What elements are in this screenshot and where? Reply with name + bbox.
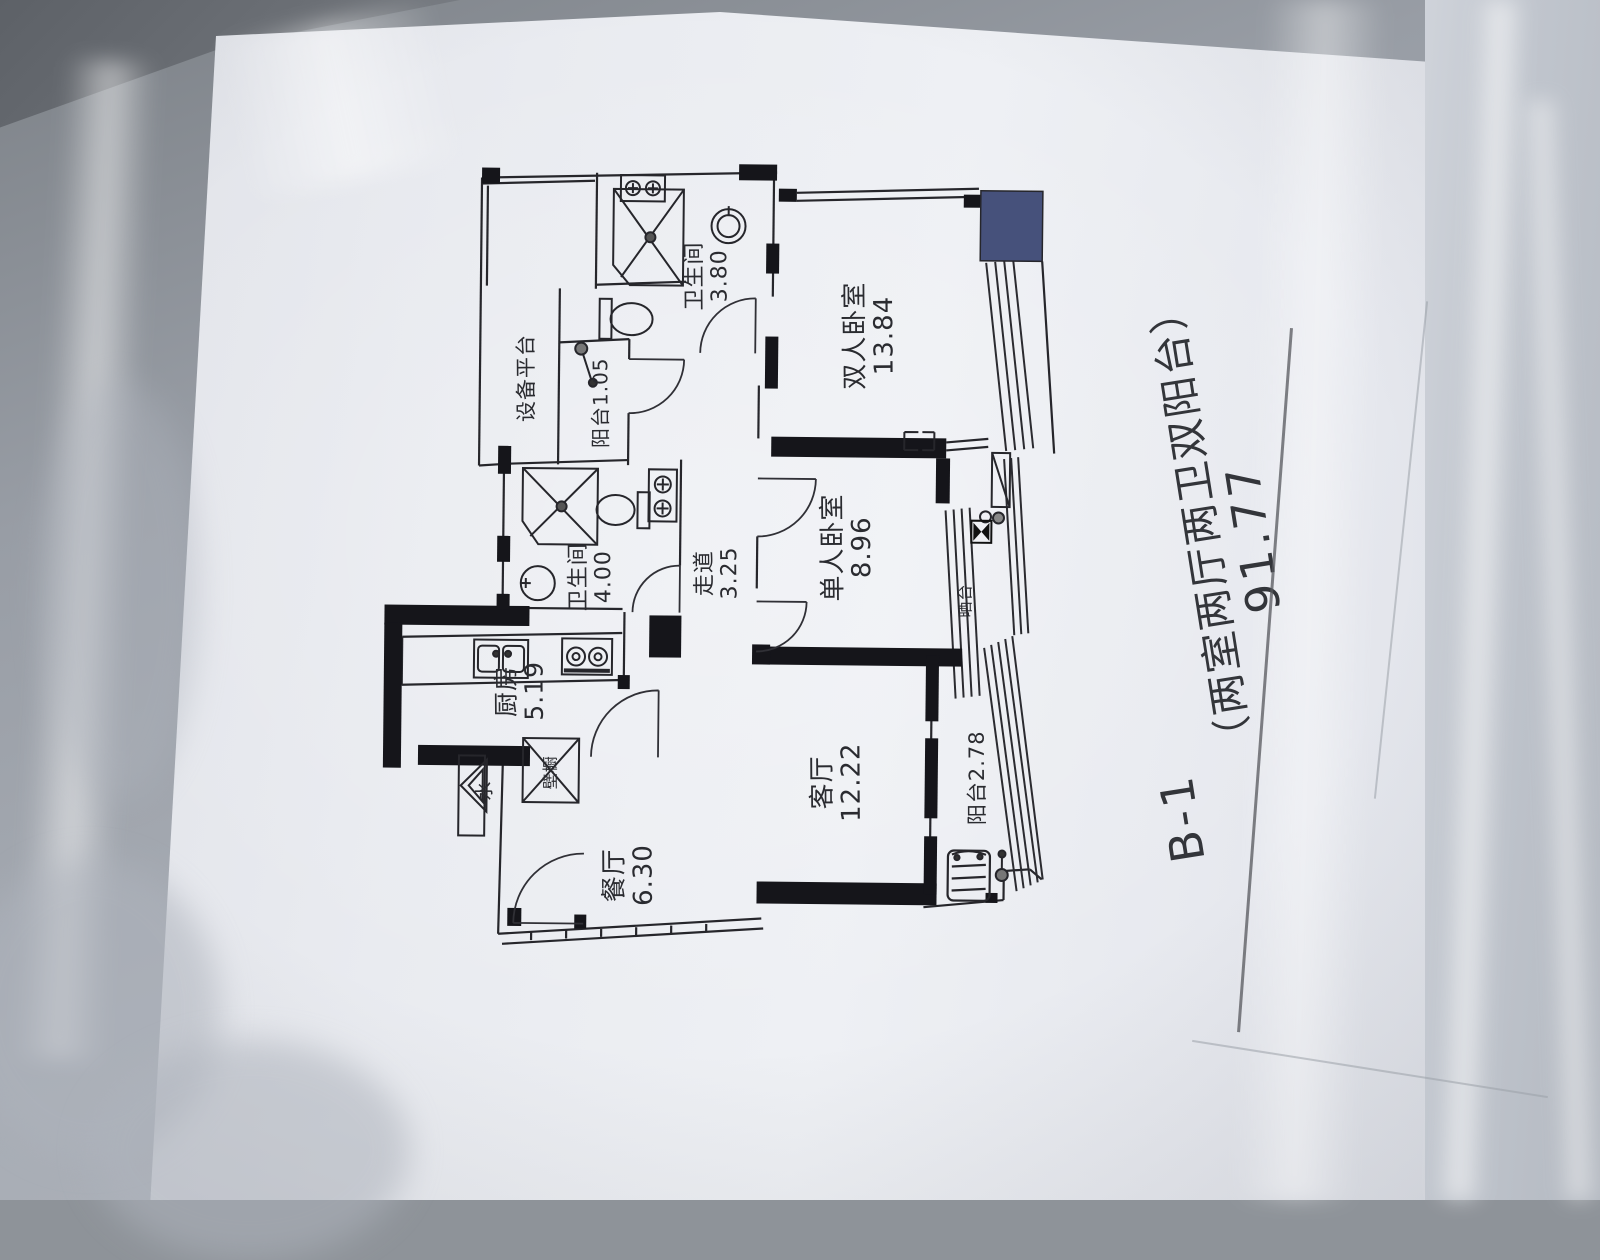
room-label-bathroom-4: 卫生间4.00 bbox=[567, 542, 617, 611]
room-label-single-bedroom: 单人卧室8.96 bbox=[819, 493, 878, 601]
small-counter-icon bbox=[648, 469, 677, 521]
toilet-icon bbox=[599, 299, 652, 340]
column-bowtie-icon bbox=[971, 521, 991, 543]
balcony-railing-band bbox=[982, 636, 1046, 892]
window-band-master-bedroom bbox=[984, 260, 1035, 452]
room-label-living-room: 客厅12.22 bbox=[808, 742, 867, 822]
shaft-column-block bbox=[980, 191, 1043, 262]
stove-icon bbox=[562, 638, 612, 675]
room-label-drying-deck: 晒台 bbox=[957, 584, 975, 618]
window-band-drying-deck bbox=[1002, 457, 1030, 635]
room-label-water: 水 bbox=[475, 781, 496, 801]
plastic-film-right bbox=[1425, 0, 1600, 1200]
room-label-kitchen: 厨房5.19 bbox=[492, 661, 548, 721]
room-label-corridor: 走道3.25 bbox=[693, 546, 743, 599]
room-label-balcony-main: 阳台2.78 bbox=[966, 730, 990, 825]
room-label-equipment-platform: 设备平台 bbox=[515, 334, 539, 422]
washing-machine-icon bbox=[947, 850, 990, 900]
room-label-bathroom-3: 卫生间3.80 bbox=[683, 241, 733, 310]
room-label-closet: 壁橱 bbox=[542, 755, 560, 789]
room-label-double-bedroom: 双人卧室13.84 bbox=[841, 281, 900, 389]
washbasin-icon bbox=[711, 206, 745, 243]
washbasin-icon bbox=[521, 566, 555, 600]
room-label-dining-room: 餐厅6.30 bbox=[600, 844, 659, 906]
toilet-icon bbox=[596, 492, 649, 529]
shower-icon bbox=[613, 189, 684, 286]
room-label-balcony-small: 阳台1.05 bbox=[589, 357, 612, 448]
water-heater-icon bbox=[992, 453, 1011, 507]
shower-icon bbox=[522, 468, 598, 545]
floor-plan: 双人卧室13.84 单人卧室8.96 客厅12.22 餐厅6.30 厨房5.19… bbox=[371, 144, 1060, 983]
floor-drain-icon bbox=[996, 850, 1008, 881]
